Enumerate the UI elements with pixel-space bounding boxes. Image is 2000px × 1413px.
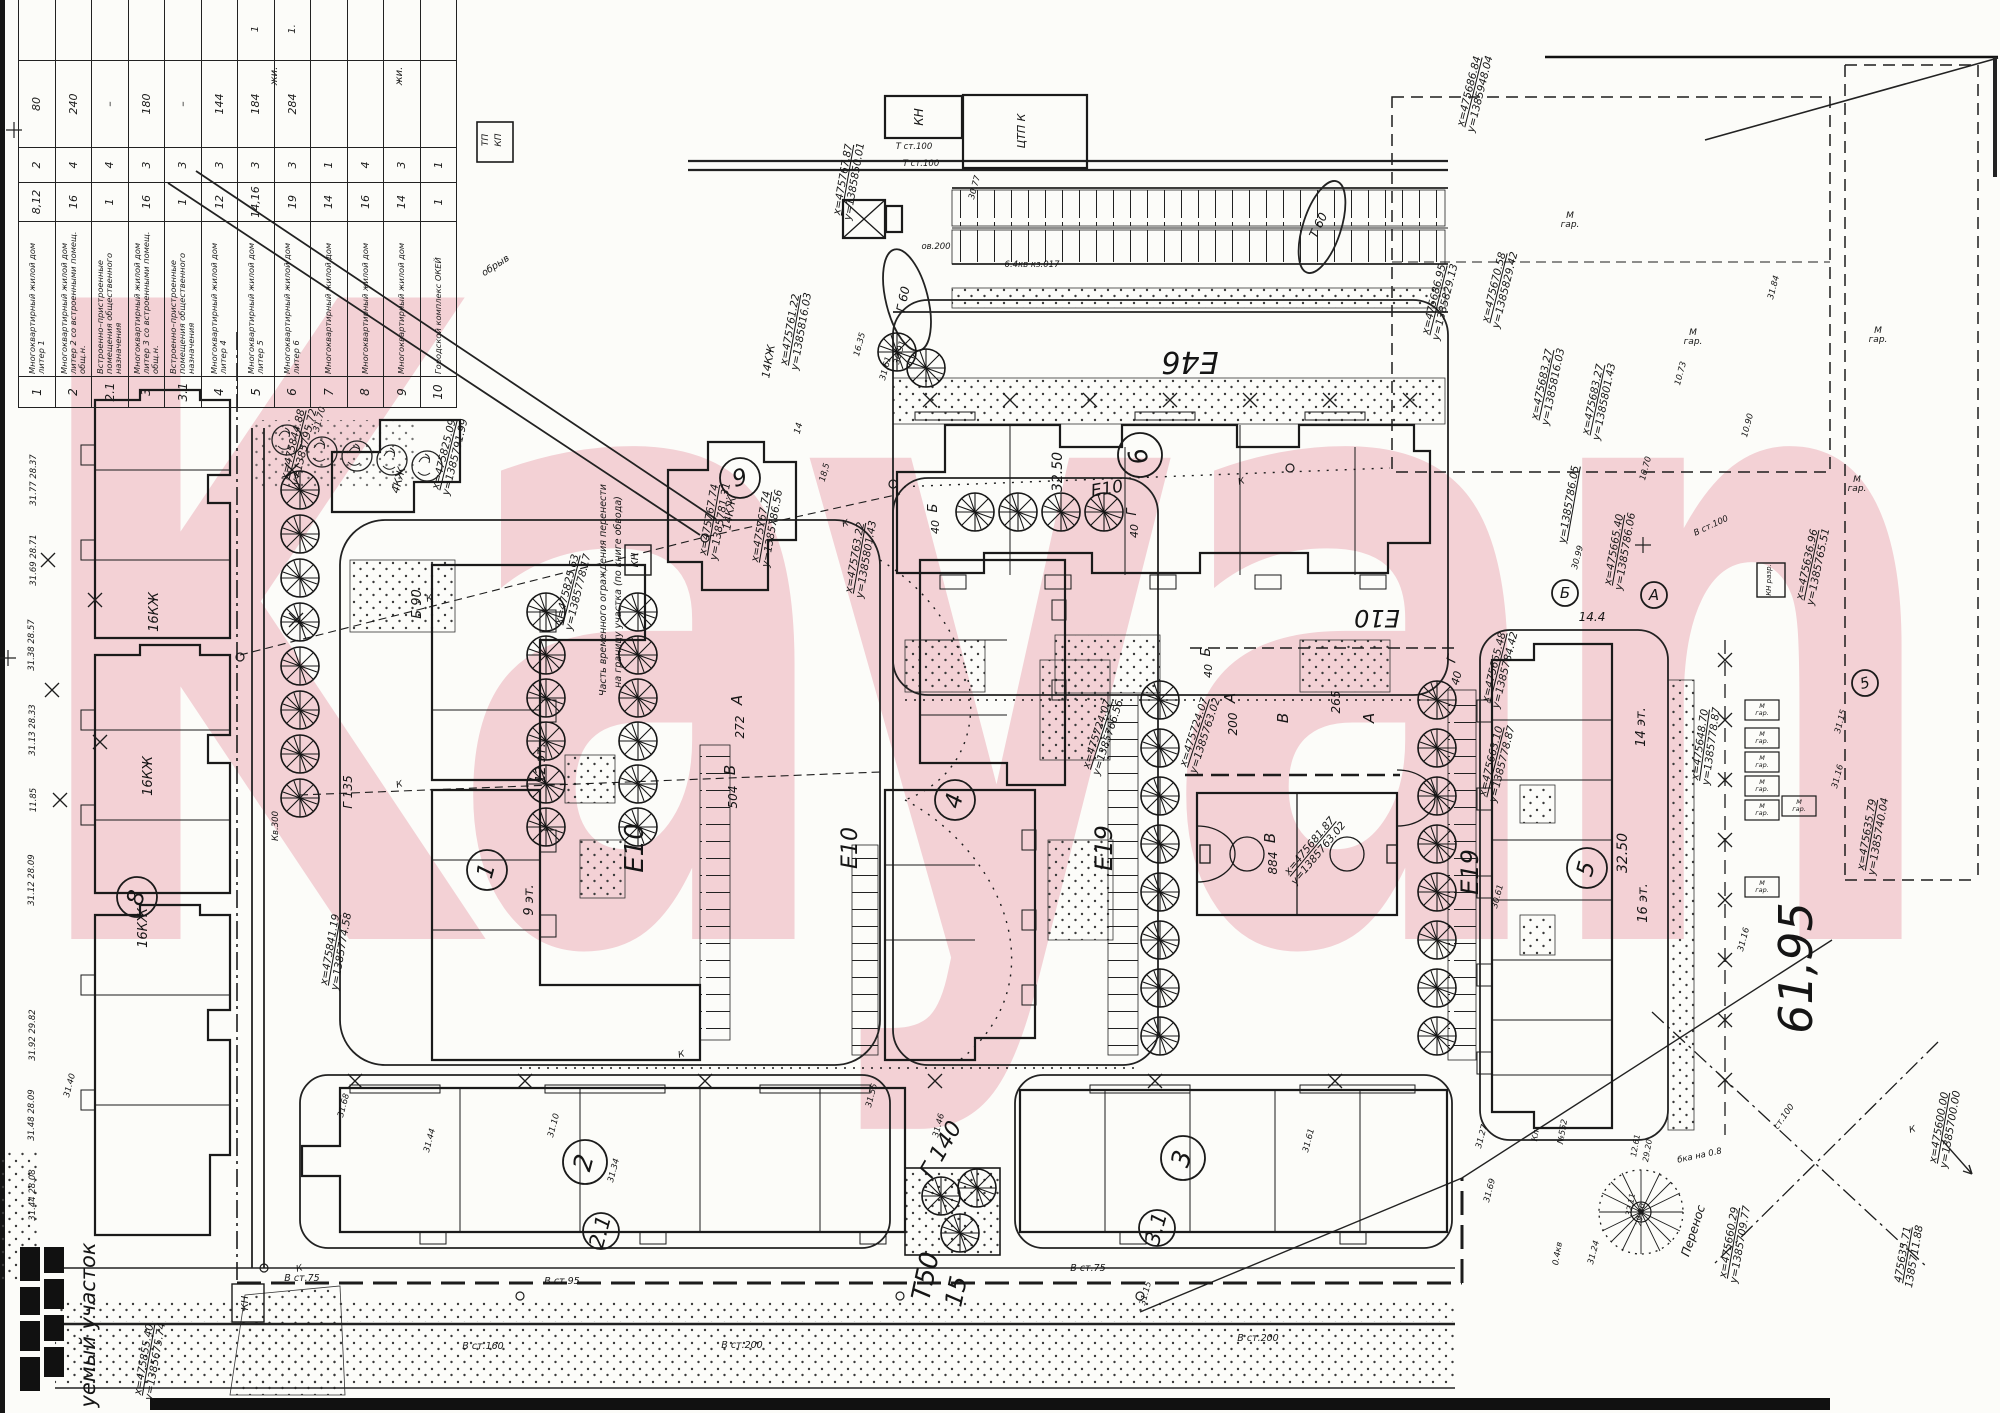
plan-label: Г (1444, 652, 1461, 665)
plan-label: КН (630, 552, 641, 567)
legend-row-floors: 14 (384, 183, 421, 222)
plan-label: Т50 (906, 1249, 946, 1303)
coord-label: 475635.711385711.88 (1892, 1222, 1926, 1289)
coord-label: х=475635.79у=1385740.04 (1854, 795, 1891, 877)
svg-text:Б: Б (1560, 584, 1570, 602)
tree-icon (956, 493, 994, 531)
plan-label: 31.77 28.37 (29, 454, 39, 506)
plan-label: 30.99 (1570, 544, 1586, 570)
legend-row-floors: 16 (128, 183, 165, 222)
tree-icon (1141, 921, 1179, 959)
plan-label: КП (494, 133, 504, 146)
coord-label: х=475825.63у=1385778.17 (552, 549, 594, 632)
plan-label: ТП (481, 134, 491, 146)
legend-row: 6Многоквартирный жилой дом литер 6193284… (274, 0, 311, 408)
tree-icon (281, 647, 319, 685)
coord-label: х=475670.58у=1385829.42 (1479, 247, 1521, 330)
legend-row-name: Встроенно–пристроенные помещения обществ… (92, 222, 129, 377)
plan-label: 16.35 (852, 331, 868, 357)
plan-label: 29.20 (1641, 1139, 1654, 1163)
legend-row-name: Многоквартирный жилой дом литер 1 (19, 222, 56, 377)
plan-label: В (1261, 833, 1279, 843)
axis-bubble: 1 (467, 850, 507, 890)
plan-label: В ст.75 (284, 1273, 319, 1284)
garage-area-label: Мгар. (1869, 326, 1888, 345)
building-existing-16kzh-1 (95, 390, 230, 638)
plan-label: 16 эт. (1636, 883, 1651, 923)
plan-label: 10.90 (1740, 412, 1756, 438)
coord-label: х=475636.96у=1385765.51 (1793, 525, 1833, 608)
garage-box: Мгар. (1745, 800, 1779, 820)
building-liter-6 (897, 425, 1430, 573)
legend-row-number: 9 (384, 377, 421, 408)
tree-icon (1418, 825, 1456, 863)
legend-row-floors: 1 (92, 183, 129, 222)
plan-label: 31.27 (1474, 1123, 1490, 1150)
legend-row-name: Многоквартирный жилой дом литер 4 (201, 222, 238, 377)
legend-row-sections: 3 (238, 148, 275, 183)
plan-label: К (1908, 1124, 1917, 1135)
legend-row-sections: 2 (19, 148, 56, 183)
tree-icon (1418, 1017, 1456, 1055)
legend-row-flats: – (92, 61, 129, 148)
tree-icon (1141, 825, 1179, 863)
legend-row-name: Многоквартирный жилой дом (384, 222, 421, 377)
tree-icon (1141, 729, 1179, 767)
legend-row-flats: 284 (274, 61, 311, 148)
axis-bubble: 6 (1118, 433, 1162, 477)
legend-row-extra: 1 (238, 0, 275, 61)
legend-row-floors: 19 (274, 183, 311, 222)
plan-label: 31.15 (1833, 708, 1849, 734)
svg-text:5: 5 (1572, 858, 1601, 879)
legend-row-name: Многоквартирный жилой дом литер 2 со вст… (55, 222, 92, 377)
plan-label: Е10 (838, 827, 863, 869)
tree-icon (527, 679, 565, 717)
tree-icon (1141, 777, 1179, 815)
legend-row-floors: 1 (420, 183, 457, 222)
plan-label: 16КЖ (141, 755, 156, 796)
tree-icon (1418, 873, 1456, 911)
coord-label: х=475763.22у=1385801.43 (842, 518, 879, 600)
garage-box: Мгар. (1782, 796, 1816, 816)
legend-row-name: Многоквартирный жилой дом литер 6 (274, 222, 311, 377)
legend-row-flats: 240 (55, 61, 92, 148)
garage-area-label: Мгар. (1684, 328, 1703, 347)
axis-bubble: 2 (563, 1140, 607, 1184)
coord-label: х=475761.22у=1385816.03 (777, 290, 814, 372)
legend-row-name: Многоквартирный жилой дом литер 5 (238, 222, 275, 377)
plan-label: 31.34 (606, 1157, 622, 1183)
legend-row: 10Городской комплекс ОКЕЙ11 (420, 0, 457, 408)
plan-label: 29.20 (1634, 1203, 1647, 1227)
tree-icon (281, 779, 319, 817)
legend-row-sections: 4 (92, 148, 129, 183)
plan-label: Г (1125, 507, 1140, 516)
coord-label: х=475686.84у=1385948.04 (1454, 52, 1496, 135)
svg-text:А: А (1648, 586, 1659, 604)
svg-text:Мгар.: Мгар. (1755, 754, 1769, 769)
building-existing-16kzh-2 (95, 645, 230, 893)
legend-row-sections: 3 (128, 148, 165, 183)
plan-label: 16КЖ (147, 591, 162, 632)
tree-icon (958, 1169, 996, 1207)
coord-label: х=475663.10у=1385778.87 (1476, 721, 1518, 804)
legend-row-sections: 3 (201, 148, 238, 183)
plan-label: 31.24 (1586, 1239, 1602, 1265)
plan-label: 40 (1202, 664, 1215, 678)
legend-row: 7Многоквартирный жилой дом141 (311, 0, 348, 408)
plan-label: А (728, 695, 746, 706)
coord-label: х=475665.40у=1385786.06 (1601, 509, 1638, 592)
legend-row: 3.1Встроенно–пристроенные помещения обще… (165, 0, 202, 408)
plan-label: КН (240, 1295, 251, 1310)
legend-row-floors: 8,12 (19, 183, 56, 222)
plan-label: 6.4кв кз.017 (1005, 260, 1061, 270)
plan-label: В ст.100 (1692, 514, 1730, 539)
plan-label: КН разр. (1765, 564, 1773, 596)
legend-row-sections: 3 (274, 148, 311, 183)
coord-label: х=475767.87у=1385850.01 (830, 140, 867, 222)
plan-label: 31.16 (1736, 926, 1752, 953)
tree-icon (1141, 969, 1179, 1007)
legend-row-number: 5 (238, 377, 275, 408)
plan-label: В (721, 765, 739, 775)
legend-row-flats (311, 61, 348, 148)
plan-label: 31.92 29.82 (28, 1009, 38, 1060)
plan-label: Б (926, 503, 941, 512)
plan-label: К (295, 1263, 304, 1274)
legend-row-extra (92, 0, 129, 61)
tree-icon (527, 636, 565, 674)
tree-icon (527, 808, 565, 846)
plan-label: 884 (1266, 852, 1280, 875)
plan-label: 31.69 28.71 (29, 534, 39, 585)
plan-label: Е10 (1089, 476, 1124, 501)
plan-label: А (1221, 693, 1239, 704)
legend-row-floors: 1 (165, 183, 202, 222)
plan-label: 31.55 (864, 1082, 880, 1108)
plan-label: К (395, 779, 404, 790)
svg-text:Мгар.: Мгар. (1755, 702, 1769, 717)
tree-icon (1418, 969, 1456, 1007)
garage-box: Мгар. (1745, 728, 1779, 748)
legend-row-flats: – (165, 61, 202, 148)
legend-row: 2.1Встроенно–пристроенные помещения обще… (92, 0, 129, 408)
legend-row-number: 1 (19, 377, 56, 408)
plan-label: 40 (1128, 524, 1141, 538)
plan-label: 12.61 (1629, 1134, 1642, 1158)
plan-label: 14 (793, 421, 806, 435)
svg-text:Мгар.: Мгар. (1755, 730, 1769, 745)
plan-label: Б 90 (410, 589, 425, 619)
plan-label: В ст.200 (1237, 1333, 1278, 1344)
legend-row-flats: 80 (19, 61, 56, 148)
plan-label: В ст.75 (1070, 1263, 1105, 1274)
plan-label: 32.11 (1624, 1193, 1637, 1217)
legend-row-sections: 1 (420, 148, 457, 183)
building-liter-4-south (885, 790, 1035, 1060)
scanned-site-plan-page: Kayan (0, 0, 2000, 1413)
garage-box: Мгар. (1745, 877, 1779, 897)
axis-bubble: 3.1 (1139, 1210, 1175, 1248)
plan-label: Б (1199, 647, 1214, 656)
plan-label: 40 (929, 520, 942, 534)
plan-label: на границу участка (по книге обвода) (613, 496, 624, 688)
svg-text:9: 9 (729, 464, 750, 493)
plan-label: 32.50 (1050, 452, 1066, 492)
plan-label: К (841, 518, 850, 529)
svg-text:Мгар.: Мгар. (1755, 778, 1769, 793)
legend-row-floors: 16 (55, 183, 92, 222)
svg-text:8: 8 (122, 887, 151, 908)
plan-label: К (1237, 476, 1246, 487)
svg-text:1: 1 (472, 860, 501, 881)
legend-row-floors: 16 (347, 183, 384, 222)
plan-label: 200 (1226, 712, 1240, 735)
legend-row-floors: 12 (201, 183, 238, 222)
plan-label: ов.200 (921, 242, 950, 252)
plan-label: 31.13 28.33 (28, 704, 38, 755)
legend-row-number: 10 (420, 377, 457, 408)
legend-row-number: 2 (55, 377, 92, 408)
plan-label: 9 эт. (522, 884, 537, 915)
svg-text:Мгар.: Мгар. (1792, 798, 1806, 813)
tree-icon (619, 636, 657, 674)
plan-label: обрыв (480, 253, 512, 279)
plan-label: 31.40 (62, 1072, 78, 1098)
legend-row-floors: 14,16 (238, 183, 275, 222)
legend-row-extra (19, 0, 56, 61)
plan-label: 31.48 28.09 (27, 1089, 37, 1140)
legend-row-extra (420, 0, 457, 61)
plan-label: 14.4 (1579, 610, 1606, 624)
coord-label: х=475825.09у=1385791.99 (429, 414, 471, 497)
plan-label: 61,95 (1769, 902, 1823, 1034)
plan-label: 265 (1329, 691, 1343, 714)
legend-row-name: Многоквартирный жилой дом (311, 222, 348, 377)
legend-row-number: 7 (311, 377, 348, 408)
svg-text:5: 5 (1858, 673, 1872, 693)
plan-label: В ст.95 (544, 1276, 579, 1287)
garage-box: Мгар. (1745, 776, 1779, 796)
axis-bubble: 5 (1567, 848, 1607, 888)
tree-icon (281, 515, 319, 553)
plan-label: 32.50 (1615, 833, 1631, 873)
plan-label: 504 (726, 786, 740, 809)
plan-label: К (677, 1049, 686, 1060)
coord-label: х=475724.07у=1385763.02 (1176, 693, 1223, 776)
plan-label: А (1360, 713, 1378, 724)
tree-icon (619, 679, 657, 717)
plan-label: Т ст.100 (896, 142, 932, 152)
plan-label: 31.68 (336, 1092, 352, 1119)
plan-label: 31.12 28.09 (27, 854, 37, 905)
legend-row: 3Многоквартирный жилой дом литер 3 со вс… (128, 0, 165, 408)
legend-row-sections: 4 (347, 148, 384, 183)
plan-label: В (1274, 713, 1292, 723)
coord-label: х=475767.74у=1385786.56 (748, 486, 785, 569)
axis-bubble: 5 (1852, 670, 1878, 696)
legend-row-sections: 4 (55, 148, 92, 183)
svg-text:2: 2 (567, 1151, 599, 1174)
svg-text:Мгар.: Мгар. (1755, 802, 1769, 817)
plan-label: Т ст.100 (903, 159, 939, 169)
legend-row-number: 6 (274, 377, 311, 408)
tree-icon (1418, 777, 1456, 815)
tree-icon (999, 493, 1037, 531)
legend-row-extra (201, 0, 238, 61)
plan-label: ЦТП К (1015, 112, 1028, 148)
svg-text:6: 6 (1122, 445, 1154, 468)
legend-row-extra (384, 0, 421, 61)
garage-area-label: Мгар. (1848, 475, 1867, 494)
svg-text:3: 3 (1165, 1147, 1197, 1170)
axis-bubble: 4 (935, 780, 975, 820)
plan-label: Г 135 (341, 775, 355, 808)
legend-row-extra (128, 0, 165, 61)
legend-row-extra (311, 0, 348, 61)
plan-label: 31.61 (878, 355, 894, 381)
legend-row: 1Многоквартирный жилой дом литер 18,1228… (19, 0, 56, 408)
building-liter-2 (302, 1088, 905, 1232)
tree-icon (1141, 681, 1179, 719)
plan-label: Г 60 (894, 285, 913, 313)
coord-label: х=475681.87у=1385763.02 (1279, 812, 1348, 888)
plan-label: 12 эт. (534, 743, 549, 783)
plan-label: уемый участок (76, 1242, 100, 1408)
legend-row-number: 2.1 (92, 377, 129, 408)
legend-row-number: 8 (347, 377, 384, 408)
plan-label: В ст.200 (721, 1340, 762, 1351)
legend-row-number: 3.1 (165, 377, 202, 408)
legend-row-flats: 144 (201, 61, 238, 148)
tree-icon (1141, 873, 1179, 911)
plan-label: 10.73 (1673, 360, 1689, 386)
plan-label: КН (912, 108, 926, 126)
tree-icon (1141, 1017, 1179, 1055)
garage-area-label: Мгар. (1561, 211, 1580, 230)
tree-icon (281, 603, 319, 641)
plan-label: бка на 0.8 (1676, 1146, 1723, 1165)
tree-icon (1418, 921, 1456, 959)
legend-row-name: Многоквартирный жилой дом литер 3 со вст… (128, 222, 165, 377)
plan-label: 14КЖ (759, 343, 778, 380)
coord-label: х=475683.27у=1385801.43 (1579, 360, 1619, 443)
legend-row-number: 4 (201, 377, 238, 408)
legend-row-name: Городской комплекс ОКЕЙ (420, 222, 457, 377)
legend-row-extra: 1. (274, 0, 311, 61)
legend-row-floors: 14 (311, 183, 348, 222)
axis-bubble: 9 (720, 458, 760, 498)
tree-icon (922, 1177, 960, 1215)
coord-label: у=1385786.05 (1556, 464, 1582, 545)
building-liter-1-south (432, 790, 700, 1060)
plan-label: 31.61 (1301, 1127, 1317, 1153)
garage-box: Мгар. (1745, 752, 1779, 772)
tree-icon (941, 1214, 979, 1252)
legend-row-flats (347, 61, 384, 148)
plan-label: ст.100 (1772, 1102, 1797, 1131)
plan-label: Часть временного ограждения перенести (598, 484, 609, 696)
building-legend-table: 1Многоквартирный жилой дом литер 18,1228… (18, 0, 457, 408)
legend-row: 8Многоквартирный жилой дом164 (347, 0, 384, 408)
legend-row-extra (55, 0, 92, 61)
plan-label: В ст.160 (462, 1341, 503, 1352)
plan-label: Е46 (1161, 344, 1218, 379)
tree-icon (1042, 493, 1080, 531)
plan-label: Е19 (1456, 849, 1484, 895)
tree-icon (281, 691, 319, 729)
plan-label: 31.10 (546, 1112, 562, 1138)
legend-row: 2Многоквартирный жилой дом литер 2 со вс… (55, 0, 92, 408)
legend-row-name: Многоквартирный жилой дом (347, 222, 384, 377)
tree-icon (619, 593, 657, 631)
legend-row-sections: 3 (384, 148, 421, 183)
legend-row: 5Многоквартирный жилой дом литер 514,163… (238, 0, 275, 408)
garage-box: Мгар. (1745, 700, 1779, 720)
svg-text:4: 4 (940, 790, 969, 811)
plan-label: 0.4кв (1551, 1241, 1565, 1266)
plan-label: 31.69 (1482, 1177, 1498, 1203)
legend-row-flats (420, 61, 457, 148)
tree-icon (907, 349, 945, 387)
plan-label: Перенос (1678, 1203, 1708, 1258)
legend-row: 4Многоквартирный жилой дом литер 4123144 (201, 0, 238, 408)
plan-label: Е19 (1090, 825, 1118, 871)
plan-label: 11.85 (29, 788, 39, 812)
plan-label: 31.38 28.57 (27, 619, 37, 671)
axis-bubble: 3 (1161, 1136, 1205, 1180)
legend-row-extra (347, 0, 384, 61)
coord-label: х=475841.19у=1385774.58 (317, 909, 354, 992)
legend-row-sections: 1 (311, 148, 348, 183)
plan-label: 14 эт. (1634, 707, 1649, 747)
coord-label: х=475665.48у=1385784.42 (1479, 627, 1521, 710)
svg-text:Мгар.: Мгар. (1755, 879, 1769, 894)
plan-label: Е10 (620, 823, 650, 873)
axis-bubble: Б (1552, 580, 1578, 606)
legend-row-extra (165, 0, 202, 61)
legend-row: 9Многоквартирный жилой дом143 (384, 0, 421, 408)
plan-label: №552 (1556, 1118, 1570, 1145)
plan-label: Кл (1530, 1129, 1542, 1143)
plan-label: 31.84 (1766, 274, 1782, 300)
legend-table-wrap: 1Многоквартирный жилой дом литер 18,1228… (18, 20, 476, 410)
plan-label: Е10 (1354, 604, 1400, 632)
legend-row-sections: 3 (165, 148, 202, 183)
legend-row-flats: 180 (128, 61, 165, 148)
coord-label: х=475683.27у=1385816.03 (1528, 345, 1568, 428)
tree-icon (281, 735, 319, 773)
plan-label: 272 (733, 716, 747, 739)
plan-label: 40 (1449, 670, 1465, 687)
tree-icon (619, 722, 657, 760)
plan-label: 31.16 (1830, 763, 1846, 790)
plan-label: 31.44 28.08 (28, 1169, 38, 1221)
legend-row-number: 3 (128, 377, 165, 408)
legend-row-name: Встроенно–пристроенные помещения обществ… (165, 222, 202, 377)
axis-bubble: А (1641, 582, 1667, 608)
tree-icon (619, 765, 657, 803)
plan-label: 31.44 (422, 1127, 438, 1153)
tree-icon (281, 559, 319, 597)
legend-row-flats (384, 61, 421, 148)
tree-icon (1418, 729, 1456, 767)
plan-label: 18,5 (818, 462, 833, 483)
legend-row-flats: 184 (238, 61, 275, 148)
coord-label: х=475660.29у=1385709.77 (1716, 1202, 1753, 1285)
